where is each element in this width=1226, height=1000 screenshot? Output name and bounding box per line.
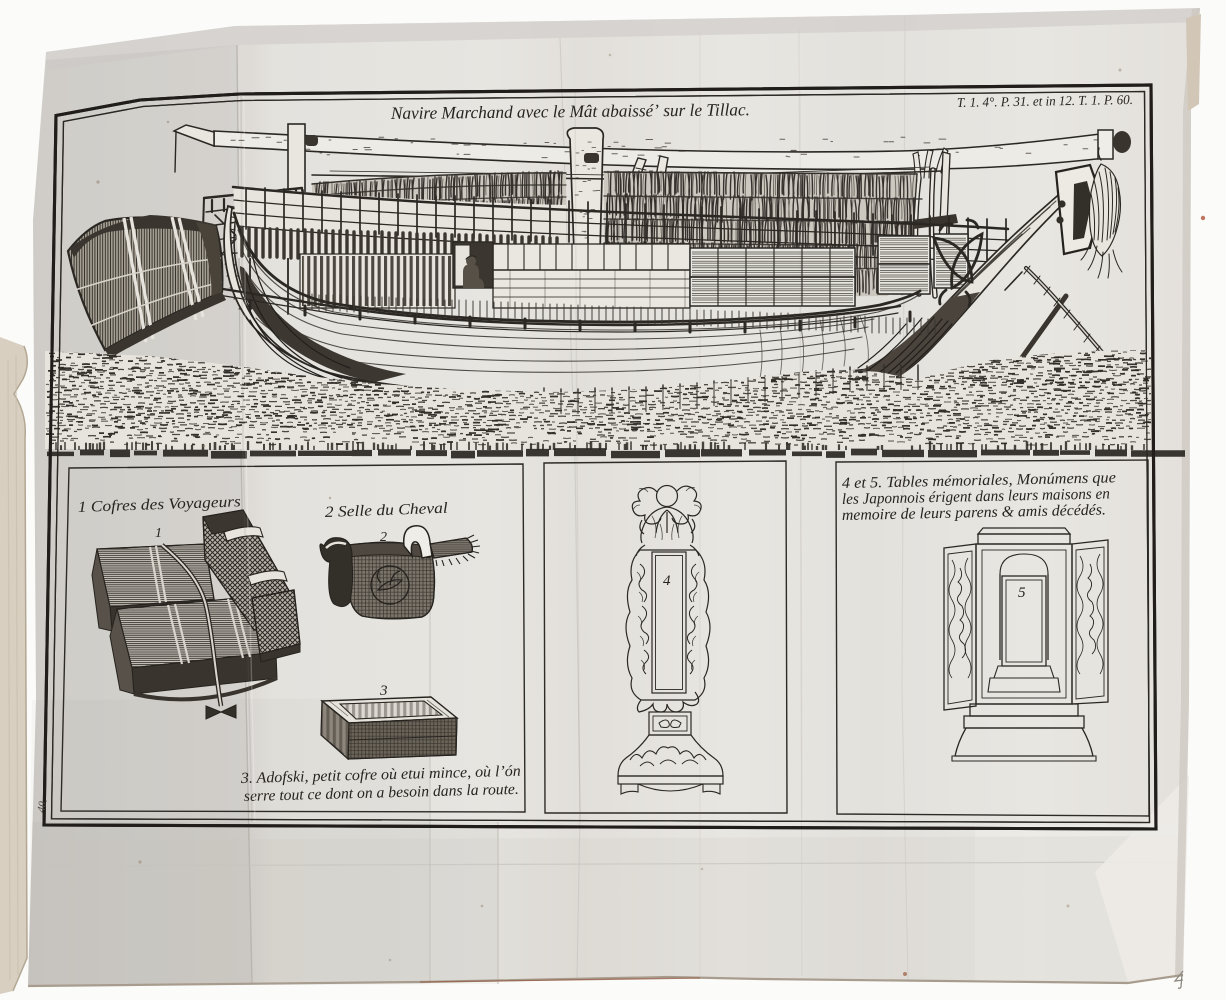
svg-text:2: 2 [380, 530, 387, 545]
svg-text:1: 1 [155, 526, 162, 541]
svg-text:4: 4 [663, 573, 671, 589]
svg-text:3: 3 [379, 683, 388, 699]
svg-text:T. 1. 4°. P. 31. et in 12. T.: T. 1. 4°. P. 31. et in 12. T. 1. P. 60. [957, 92, 1133, 110]
svg-text:Navire Marchand avec le Mât ab: Navire Marchand avec le Mât abaisséʼ sur… [390, 99, 750, 123]
svg-text:5: 5 [1018, 585, 1026, 601]
